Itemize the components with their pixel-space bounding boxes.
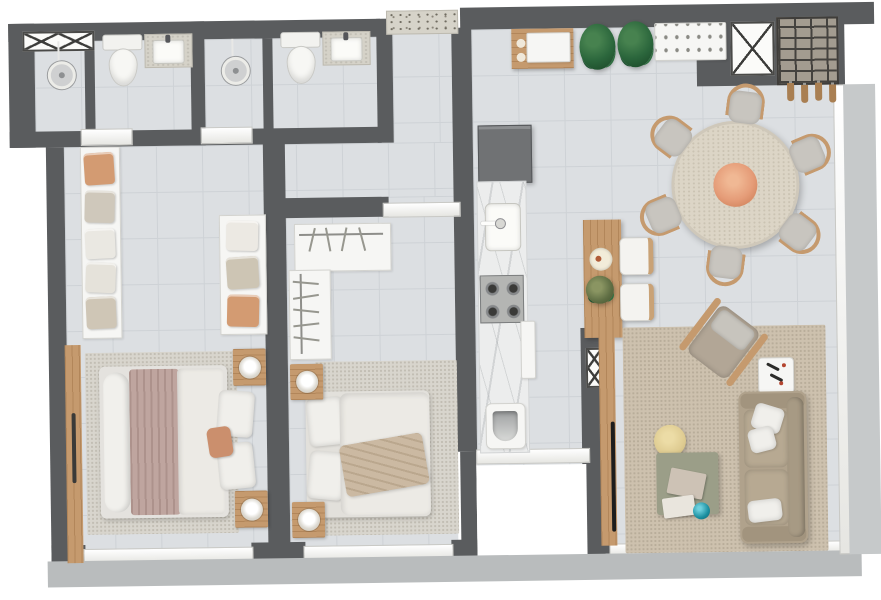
side-table-red-dot-icon — [782, 363, 786, 367]
clothes-stack-5 — [85, 296, 117, 329]
wall-bedroom2-top — [271, 197, 389, 219]
sofa-backrest — [786, 397, 805, 537]
master-nightstand-top — [233, 348, 267, 385]
potted-plant-icon-2 — [617, 21, 654, 67]
island-plate-food-icon — [595, 256, 601, 262]
bed2-nightstand-bottom — [292, 502, 325, 538]
entry-door-threshold — [386, 10, 458, 35]
bedroom2-sliding-door — [383, 202, 461, 218]
bath1-faucet-icon — [165, 35, 170, 43]
bed2-nightstand-top — [290, 364, 323, 400]
island-stool-2 — [620, 283, 655, 321]
master-bed-mauve-blanket — [129, 369, 181, 516]
service-void — [476, 464, 587, 558]
bath2-door-sill — [201, 127, 253, 145]
coffee-table-book-2 — [662, 495, 696, 519]
master-nightstand-bottom — [235, 490, 269, 527]
chair-cushion — [727, 90, 763, 126]
floor-plan-canvas — [0, 0, 881, 600]
clothes-stack-6 — [226, 220, 259, 251]
balcony-floor — [843, 84, 881, 554]
clothes-stack-4 — [85, 262, 116, 293]
master-bed-bolster — [103, 372, 131, 512]
hanging-utensil-icon-4 — [829, 84, 836, 102]
bath1-door-sill — [81, 128, 133, 146]
shaft-x-box — [730, 21, 775, 76]
bath2-faucet-icon — [343, 32, 348, 40]
chair-cushion — [708, 244, 744, 280]
kitchen-faucet-knob — [495, 218, 506, 229]
laundry-tub-basin — [493, 411, 518, 441]
hanging-utensil-icon-2 — [801, 85, 808, 103]
potted-plant-icon-1 — [579, 24, 616, 70]
clothes-stack-2 — [84, 190, 115, 223]
wall-bath2-entry — [376, 19, 394, 143]
hanging-utensil-icon-3 — [815, 83, 822, 101]
clothes-stack-3 — [84, 228, 115, 259]
buffet-cabinet — [654, 22, 727, 61]
console-bowl-icon — [516, 39, 525, 48]
side-table — [758, 357, 794, 393]
clothes-stack-8 — [227, 294, 260, 327]
master-accent-cushion — [206, 425, 234, 458]
apartment-floor-plan — [0, 0, 881, 600]
hanging-utensil-icon-1 — [787, 83, 794, 101]
console-tray — [526, 32, 570, 63]
grill-brick-niche — [776, 16, 839, 85]
clothes-stack-1 — [83, 152, 115, 186]
bath2-sink-basin — [330, 37, 362, 61]
oven-panel — [520, 321, 536, 379]
teal-sphere-icon — [693, 502, 710, 519]
clothes-stack-7 — [226, 256, 260, 290]
bath1-sink-basin — [152, 40, 184, 64]
gas-cooktop — [480, 275, 525, 324]
wall-bath2-shower — [262, 38, 273, 138]
island-stool-1 — [619, 237, 654, 275]
sofa — [738, 391, 808, 544]
sofa-pillow-3 — [747, 498, 783, 524]
wall-bath1-shower — [84, 41, 95, 141]
refrigerator — [478, 125, 533, 184]
